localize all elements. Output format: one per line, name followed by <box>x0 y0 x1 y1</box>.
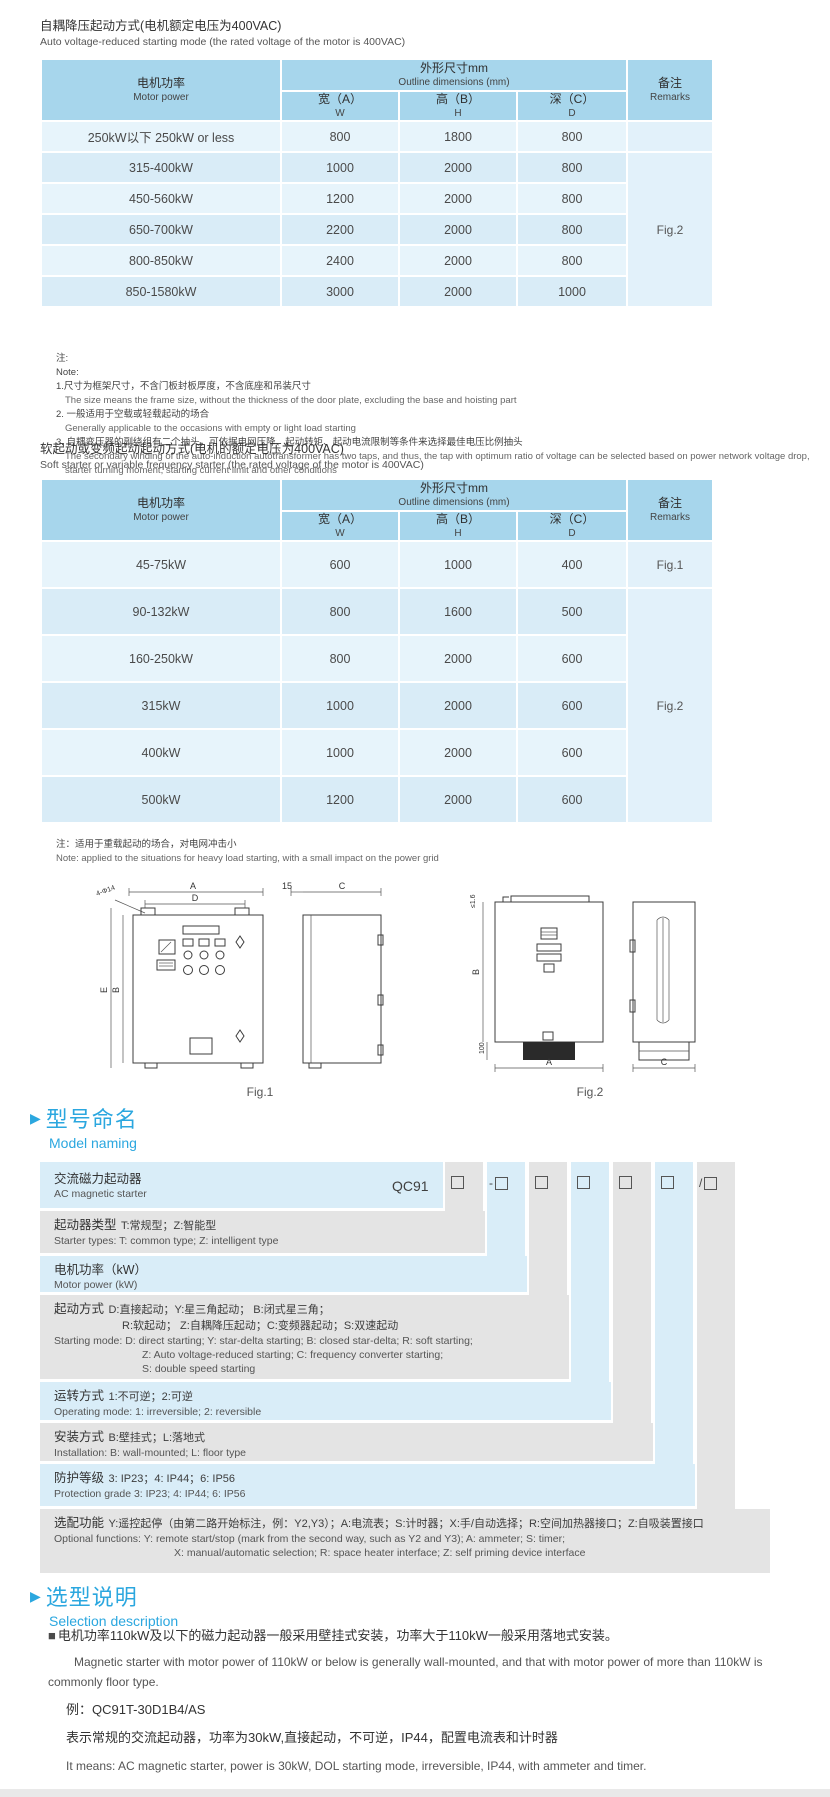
code-box-3 <box>533 1176 548 1189</box>
remark-cell-fig2: Fig.2 <box>627 152 713 307</box>
svg-text:≤1.6: ≤1.6 <box>470 894 477 908</box>
remark-cell-fig2: Fig.2 <box>627 588 713 823</box>
code-stripe-4 <box>571 1162 609 1382</box>
page-bottom-edge <box>0 1789 830 1797</box>
col-header-height: 高（B）H <box>399 511 517 541</box>
model-row-product: 交流磁力起动器 AC magnetic starter <box>40 1162 443 1208</box>
col-header-remarks: 备注 Remarks <box>627 59 713 121</box>
svg-text:A: A <box>546 1057 552 1067</box>
table-row: 650-700kW22002000800 <box>41 214 713 245</box>
code-box-6 <box>659 1176 674 1189</box>
triangle-marker-icon: ▶ <box>30 1588 41 1605</box>
model-naming-table: 交流磁力起动器 AC magnetic starter QC91 - / 起动器… <box>40 1162 770 1576</box>
col-header-outline-dims: 外形尺寸mm Outline dimensions (mm) <box>281 479 627 511</box>
table-row: 250kW以下 250kW or less8001800800 <box>41 121 713 152</box>
svg-text:B: B <box>471 969 481 975</box>
table2-title: 软起动或变频起动起动方式(电机的额定电压为400VAC) Soft starte… <box>40 441 424 473</box>
table2-title-en: Soft starter or variable frequency start… <box>40 458 424 473</box>
code-stripe-6 <box>655 1162 693 1464</box>
table1-title-en: Auto voltage-reduced starting mode (the … <box>40 35 405 50</box>
model-row-operating-mode: 运转方式 1:不可逆；2:可逆 Operating mode: 1: irrev… <box>40 1382 611 1420</box>
table-row: 45-75kW6001000400 Fig.1 <box>41 541 713 588</box>
code-box-1 <box>449 1176 464 1189</box>
table-row: 160-250kW8002000600 <box>41 635 713 682</box>
code-box-2: - <box>489 1176 508 1190</box>
code-box-7: / <box>699 1176 717 1190</box>
table1-title-zh: 自耦降压起动方式(电机额定电压为400VAC) <box>40 18 405 35</box>
square-bullet-icon: ■ <box>48 1628 56 1643</box>
table2-note: 注：适用于重载起动的场合，对电网冲击小 Note: applied to the… <box>56 838 439 866</box>
selection-p2-zh: 表示常规的交流起动器，功率为30kW,直接起动，不可逆，IP44，配置电流表和计… <box>48 1728 796 1748</box>
col-header-motor-power: 电机功率 Motor power <box>41 479 281 541</box>
table-row: 850-1580kW300020001000 <box>41 276 713 307</box>
code-box-4 <box>575 1176 590 1189</box>
svg-text:C: C <box>661 1057 668 1067</box>
placeholder-box <box>704 1177 717 1190</box>
col-header-motor-power: 电机功率 Motor power <box>41 59 281 121</box>
model-naming-section-header: ▶ 型号命名 Model naming <box>30 1102 138 1151</box>
placeholder-box <box>619 1176 632 1189</box>
model-row-protection-grade: 防护等级 3: IP23；4: IP44；6: IP56 Protection … <box>40 1464 695 1506</box>
fig2-caption: Fig.2 <box>465 1085 715 1099</box>
placeholder-box <box>495 1177 508 1190</box>
selection-p2-en: It means: AC magnetic starter, power is … <box>48 1756 796 1776</box>
table-row: 800-850kW24002000800 <box>41 245 713 276</box>
selection-body: ■电机功率110kW及以下的磁力起动器一般采用壁挂式安装，功率大于110kW一般… <box>48 1626 796 1776</box>
model-row-optional-functions: 选配功能 Y:遥控起停（由第二路开始标注，例：Y2,Y3）；A:电流表；S:计时… <box>40 1509 770 1573</box>
fig1-caption: Fig.1 <box>95 1085 425 1099</box>
fig2-drawing: ≤1.6 B 100 A C <box>465 880 715 1076</box>
soft-starter-table: 电机功率 Motor power 外形尺寸mm Outline dimensio… <box>40 478 714 824</box>
svg-text:100: 100 <box>479 1042 486 1054</box>
svg-text:B: B <box>111 987 121 993</box>
col-header-height: 高（B）H <box>399 91 517 121</box>
outline-drawings: A D 4-Φ14 B E 15 <box>95 880 715 1099</box>
table-row: 400kW10002000600 <box>41 729 713 776</box>
col-header-width: 宽（A）W <box>281 511 399 541</box>
svg-text:E: E <box>99 987 109 993</box>
placeholder-box <box>577 1176 590 1189</box>
table-row: 90-132kW8001600500 Fig.2 <box>41 588 713 635</box>
selection-p1-en: Magnetic starter with motor power of 110… <box>48 1652 796 1692</box>
svg-text:A: A <box>190 881 196 891</box>
remark-cell <box>627 121 713 152</box>
selection-title-zh: 选型说明 <box>46 1580 138 1612</box>
code-stripe-5 <box>613 1162 651 1423</box>
placeholder-box <box>535 1176 548 1189</box>
col-header-outline-dims: 外形尺寸mm Outline dimensions (mm) <box>281 59 627 91</box>
placeholder-box <box>661 1176 674 1189</box>
triangle-marker-icon: ▶ <box>30 1110 41 1127</box>
model-row-starter-type: 起动器类型 T:常规型；Z:智能型 Starter types: T: comm… <box>40 1211 485 1253</box>
placeholder-box <box>451 1176 464 1189</box>
model-code-prefix: QC91 <box>392 1178 429 1194</box>
fig1-drawing: A D 4-Φ14 B E 15 <box>95 880 425 1076</box>
svg-text:4-Φ14: 4-Φ14 <box>95 885 116 898</box>
table2-title-zh: 软起动或变频起动起动方式(电机的额定电压为400VAC) <box>40 441 424 458</box>
model-row-motor-power: 电机功率（kW） Motor power (kW) <box>40 1256 527 1292</box>
table-row: 450-560kW12002000800 <box>41 183 713 214</box>
model-row-installation: 安装方式 B:壁挂式；L:落地式 Installation: B: wall-m… <box>40 1423 653 1461</box>
model-row-starting-mode: 起动方式 D:直接起动；Y:星三角起动； B:闭式星三角； R:软起动； Z:自… <box>40 1295 569 1379</box>
fig1-block: A D 4-Φ14 B E 15 <box>95 880 425 1099</box>
remark-cell-fig1: Fig.1 <box>627 541 713 588</box>
table-row: 315kW10002000600 <box>41 682 713 729</box>
code-stripe-7 <box>697 1162 735 1509</box>
table-row: 315-400kW10002000800 Fig.2 <box>41 152 713 183</box>
selection-p1-zh: 电机功率110kW及以下的磁力起动器一般采用壁挂式安装，功率大于110kW一般采… <box>58 1628 618 1643</box>
svg-text:D: D <box>192 893 199 903</box>
table1-title: 自耦降压起动方式(电机额定电压为400VAC) Auto voltage-red… <box>40 18 405 50</box>
fig2-block: ≤1.6 B 100 A C <box>465 880 715 1099</box>
code-box-5 <box>617 1176 632 1189</box>
auto-voltage-table: 电机功率 Motor power 外形尺寸mm Outline dimensio… <box>40 58 714 308</box>
table-row: 500kW12002000600 <box>41 776 713 823</box>
selection-section-header: ▶ 选型说明 Selection description <box>30 1580 178 1629</box>
col-header-depth: 深（C）D <box>517 91 627 121</box>
col-header-remarks: 备注 Remarks <box>627 479 713 541</box>
selection-example: 例：QC91T-30D1B4/AS <box>48 1700 796 1720</box>
col-header-depth: 深（C）D <box>517 511 627 541</box>
svg-text:C: C <box>339 881 346 891</box>
model-naming-title-en: Model naming <box>49 1135 138 1151</box>
col-header-width: 宽（A）W <box>281 91 399 121</box>
model-naming-title-zh: 型号命名 <box>46 1102 138 1134</box>
svg-text:15: 15 <box>282 881 292 891</box>
